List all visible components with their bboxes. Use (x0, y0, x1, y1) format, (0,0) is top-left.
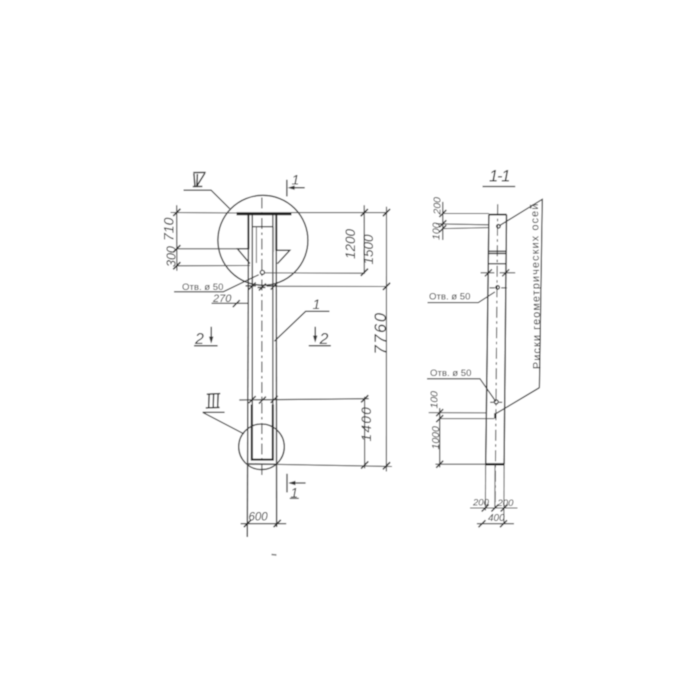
svg-text:7760: 7760 (372, 311, 390, 354)
svg-text:Отв. ø 50: Отв. ø 50 (429, 292, 470, 303)
svg-text:Отв. ø 50: Отв. ø 50 (430, 368, 471, 379)
svg-text:1: 1 (292, 172, 300, 188)
svg-text:600: 600 (249, 512, 269, 524)
svg-text:1000: 1000 (430, 426, 442, 450)
svg-text:1-1: 1-1 (489, 168, 509, 186)
svg-text:300: 300 (165, 246, 179, 267)
svg-text:710: 710 (161, 217, 177, 241)
svg-text:1500: 1500 (361, 234, 376, 265)
svg-text:1200: 1200 (343, 228, 358, 259)
svg-text:200: 200 (432, 197, 444, 216)
svg-text:100: 100 (429, 391, 441, 409)
svg-text:1400: 1400 (359, 406, 374, 442)
svg-text:1: 1 (313, 296, 321, 312)
svg-text:200: 200 (472, 498, 490, 509)
svg-text:100: 100 (431, 222, 443, 240)
svg-text:200: 200 (497, 498, 515, 509)
svg-text:400: 400 (488, 513, 505, 524)
